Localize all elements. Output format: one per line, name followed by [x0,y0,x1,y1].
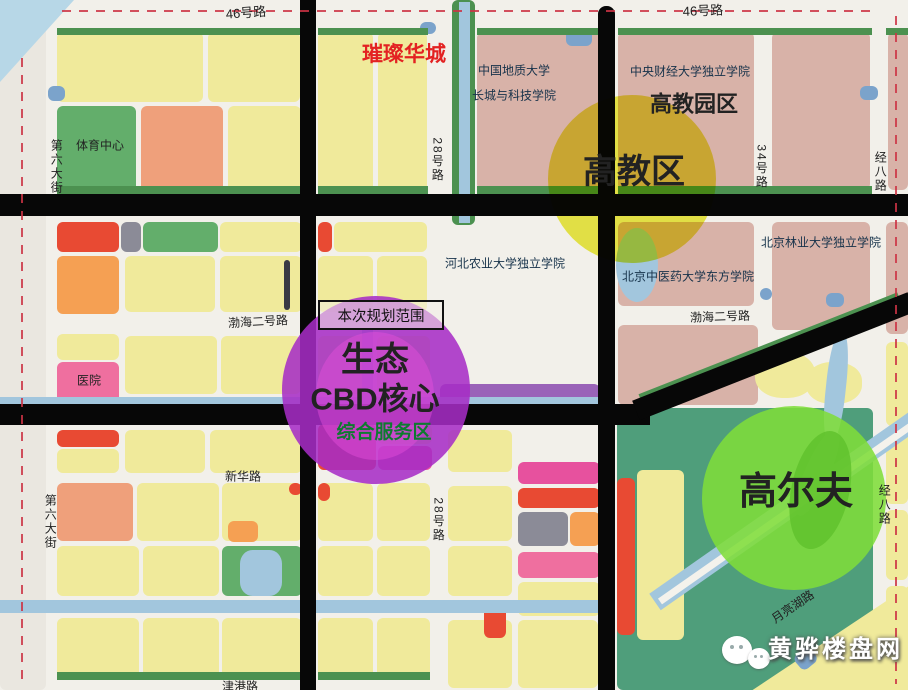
tree-strip [886,28,908,35]
road34-label: 34号路 [755,144,768,189]
eco-label: 生态 [341,343,409,379]
road-label-46-west: 46号路 [225,5,266,21]
map-block-pk [518,552,600,578]
map-block-mg [518,462,600,484]
canal [459,2,470,223]
canal [240,550,282,596]
tree-strip [318,28,428,35]
map-block-gy [121,222,141,252]
map-block-y [222,618,302,678]
road28-label-bottom: 28号路 [432,497,445,542]
bohai2-label-east: 渤海二号路 [690,310,750,325]
sports-center-label: 体育中心 [76,140,124,153]
map-block-r [617,478,635,635]
tree-strip [318,672,430,680]
street6-label-bottom: 第六大街 [44,494,57,550]
map-block-y [137,483,219,541]
tree-strip [57,672,303,680]
map-block-y [143,546,219,596]
main-road [0,194,908,216]
tree-strip [318,186,428,194]
gaojiao-park-label: 高教园区 [650,92,738,115]
service-zone-label: 综合服务区 [336,423,431,443]
map-block-y [57,334,119,360]
jingang-road-label: 津港路 [222,681,258,690]
planning-map: 46号路46号路璀璨华城中国地质大学长城与科技学院中央财经大学独立学院高教园区高… [0,0,908,690]
tree-strip [477,28,603,35]
boundary-dashed-line [62,10,874,12]
map-block-y [210,430,302,473]
map-block-y [143,618,219,678]
tree-strip [57,186,303,194]
map-block-y [377,546,430,596]
map-block-sa [141,106,223,192]
road28-label-top: 28号路 [431,137,444,182]
gaojiao-zone-label: 高教区 [583,155,685,191]
cugb-label-line2: 长城与科技学院 [472,90,556,103]
map-block-r [318,483,330,501]
map-block-y [125,336,217,394]
map-block-y [448,486,512,541]
street6-label-top: 第六大街 [50,139,63,195]
map-block-y [57,32,203,102]
map-block-y [377,618,430,678]
map-block-o [57,256,119,314]
map-block-y [208,32,300,102]
hospital-label: 医院 [77,375,101,388]
map-block-y [637,470,684,640]
map-block-r [518,488,600,508]
cugb-label-line1: 中国地质大学 [478,65,550,78]
cuican-huacheng-label: 璀璨华城 [362,44,446,66]
bucm-label: 北京中医药大学东方学院 [622,271,754,284]
map-block-g [143,222,218,252]
map-block-y [125,430,205,473]
wechat-icon-small [748,648,770,669]
map-block-r [57,222,119,252]
cbd-core-label: CBD核心 [310,384,439,417]
map-block-y [228,106,301,192]
map-block-y [318,618,373,678]
tree-strip [618,28,872,35]
map-block-y [448,546,512,596]
xinhua-road-label: 新华路 [225,471,261,484]
bohai2-label-west: 渤海二号路 [228,314,289,330]
jingba-label-bottom: 经八路 [878,484,891,526]
map-block-p [772,32,870,190]
map-block-y [334,222,427,252]
map-block-bl [760,288,772,300]
planning-scope-box: 本次规划范围 [318,300,444,330]
map-block-o [228,521,258,542]
map-block-y [318,546,373,596]
road-label-46-east: 46号路 [683,3,724,18]
hebau-label: 河北农业大学独立学院 [445,258,565,271]
cufe-label: 中央财经大学独立学院 [630,66,750,79]
golf-label: 高尔夫 [739,473,853,513]
map-block-o [570,512,600,546]
map-block-y [57,449,119,473]
map-block-y [57,546,139,596]
map-block-bl [826,293,844,307]
map-block-y [377,483,430,541]
boundary-dashed-line [895,16,897,684]
map-block-r [318,222,332,252]
watermark-text: 黄骅楼盘网 [768,629,903,664]
map-block-bl [48,86,65,101]
map-block-sa [57,483,133,541]
map-block-y [518,620,598,688]
map-block-r [57,430,119,447]
bjfu-label: 北京林业大学独立学院 [761,237,881,250]
map-block-p [888,32,908,190]
map-block-bl [860,86,878,100]
map-block-dk [284,260,290,310]
map-block-gy [518,512,568,546]
map-block-y [125,256,215,312]
map-block-out [0,0,46,690]
jingba-label-top: 经八路 [874,151,887,193]
tree-strip [57,28,303,35]
map-block-y [220,222,302,252]
map-block-y [57,618,139,678]
boundary-dashed-line [21,58,23,686]
